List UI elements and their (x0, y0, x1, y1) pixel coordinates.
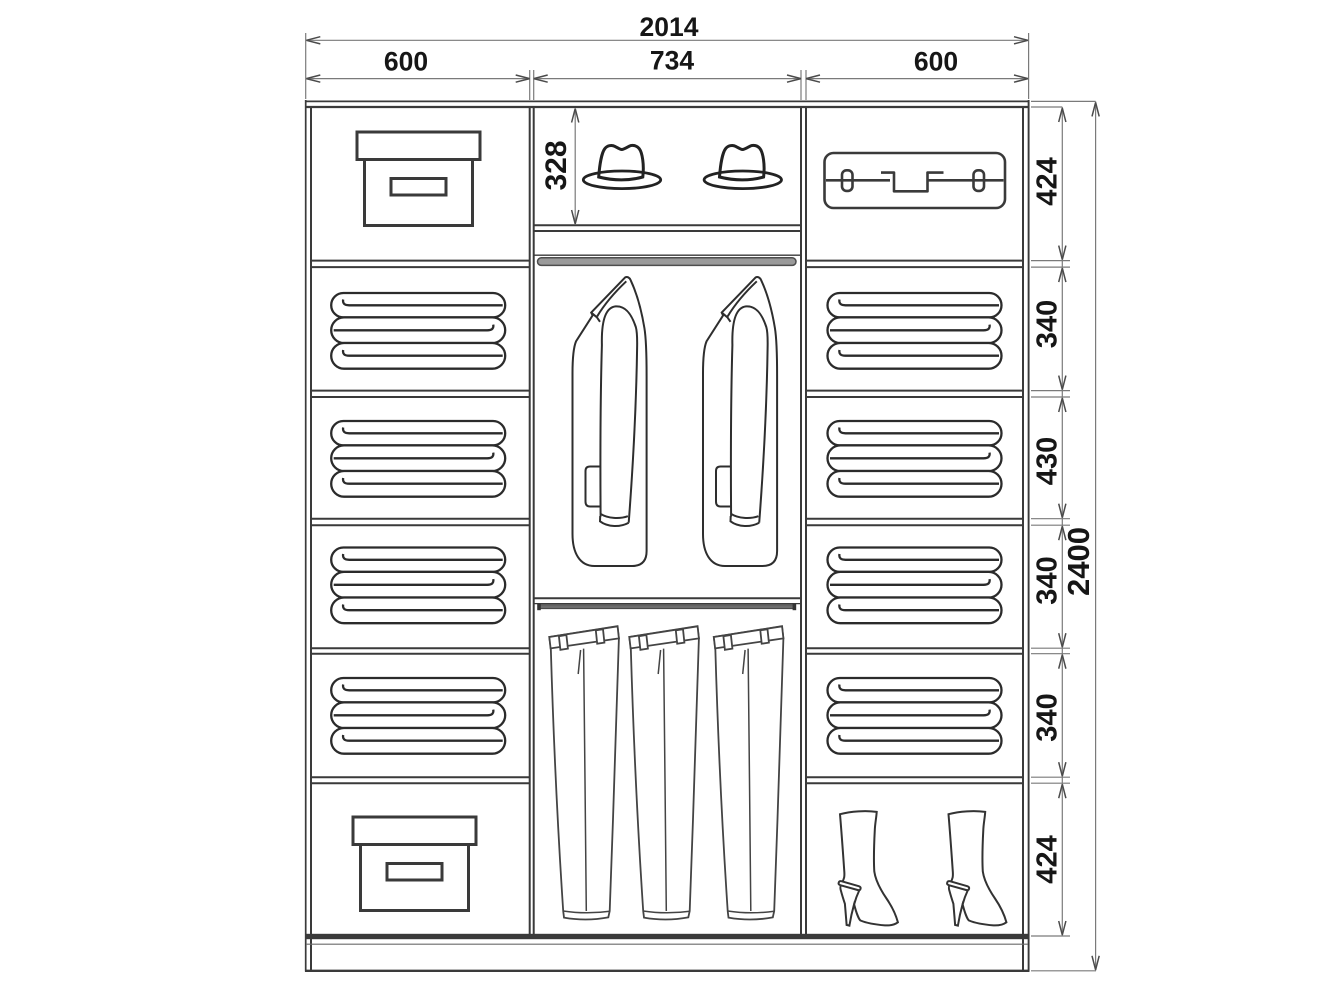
svg-text:430: 430 (1032, 437, 1064, 485)
svg-text:340: 340 (1032, 693, 1064, 741)
svg-text:600: 600 (914, 47, 958, 77)
svg-text:424: 424 (1032, 835, 1064, 883)
svg-text:600: 600 (384, 47, 428, 77)
svg-text:340: 340 (1032, 300, 1064, 348)
svg-text:328: 328 (540, 140, 573, 190)
svg-text:734: 734 (650, 46, 694, 76)
svg-text:424: 424 (1032, 157, 1064, 205)
svg-text:340: 340 (1032, 556, 1064, 604)
svg-text:2014: 2014 (640, 12, 699, 42)
svg-text:2400: 2400 (1061, 527, 1096, 596)
